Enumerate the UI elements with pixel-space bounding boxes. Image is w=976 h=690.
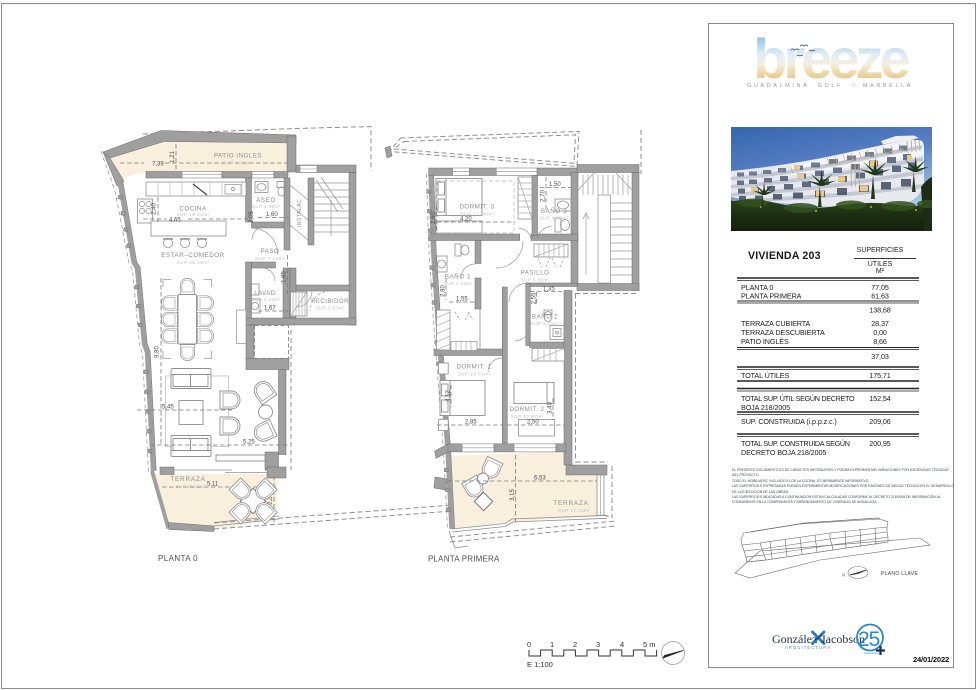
svg-text:25: 25 <box>858 628 880 651</box>
svg-text:TOTAL ÚTILES: TOTAL ÚTILES <box>741 371 789 380</box>
svg-text:SUP 45.16m²: SUP 45.16m² <box>176 260 209 266</box>
svg-text:TOTAL SUP. CONSTRUIDA SEGÚN: TOTAL SUP. CONSTRUIDA SEGÚN <box>741 439 850 448</box>
svg-text:209,06: 209,06 <box>869 417 890 426</box>
svg-text:2,85: 2,85 <box>465 420 477 426</box>
svg-text:6,53: 6,53 <box>534 476 546 482</box>
svg-text:PATIO INGLES: PATIO INGLES <box>214 153 262 160</box>
svg-text:0: 0 <box>527 640 531 649</box>
svg-text:PASO: PASO <box>261 248 280 255</box>
svg-text:RECIBIDOR: RECIBIDOR <box>311 299 349 305</box>
svg-text:7,39: 7,39 <box>152 162 164 168</box>
svg-text:138,68: 138,68 <box>869 306 890 315</box>
svg-text:1,67: 1,67 <box>264 306 276 312</box>
svg-text:SUP 3.44m²: SUP 3.44m² <box>530 321 559 327</box>
svg-text:COCINA: COCINA <box>179 206 206 213</box>
svg-text:SUP 12.56m²: SUP 12.56m² <box>460 212 493 218</box>
svg-text:TERRAZA DESCUBIERTA: TERRAZA DESCUBIERTA <box>741 328 825 337</box>
svg-text:INSTALAC.: INSTALAC. <box>297 197 303 227</box>
svg-text:TERRAZA CUBIERTA: TERRAZA CUBIERTA <box>741 319 811 328</box>
svg-text:ARQUITECTURA: ARQUITECTURA <box>785 645 831 650</box>
svg-text:SUP 7.12m²: SUP 7.12m² <box>255 256 285 262</box>
svg-text:5,25: 5,25 <box>243 440 255 446</box>
svg-text:BAÑO 3: BAÑO 3 <box>541 208 567 215</box>
svg-text:4: 4 <box>620 640 624 649</box>
svg-text:SUP 3.26m²: SUP 3.26m² <box>251 297 280 303</box>
svg-text:SUP. CONSTRUIDA (i.p.p.z.c.): SUP. CONSTRUIDA (i.p.p.z.c.) <box>741 417 837 426</box>
svg-text:1,55: 1,55 <box>456 297 468 303</box>
svg-text:5,11: 5,11 <box>207 482 219 488</box>
svg-text:LAVAD.: LAVAD. <box>254 291 277 297</box>
svg-text:TERRAZA: TERRAZA <box>553 500 588 507</box>
svg-text:1,21: 1,21 <box>170 151 176 163</box>
svg-text:8,66: 8,66 <box>873 337 887 346</box>
svg-text:PASILLO: PASILLO <box>521 270 550 277</box>
svg-text:E 1:100: E 1:100 <box>527 660 553 669</box>
svg-text:37,03: 37,03 <box>871 352 889 361</box>
svg-text:PLANO LLAVE: PLANO LLAVE <box>881 571 918 577</box>
svg-text:2,70: 2,70 <box>541 190 547 202</box>
svg-text:4,12: 4,12 <box>446 390 452 402</box>
svg-text:3: 3 <box>596 640 600 649</box>
svg-text:breeze: breeze <box>753 30 909 90</box>
svg-text:DORMIT. 1: DORMIT. 1 <box>456 364 491 371</box>
svg-text:1,95: 1,95 <box>282 271 288 283</box>
svg-text:SUP 12.87m²: SUP 12.87m² <box>510 414 543 420</box>
svg-text:PLANTA PRIMERA: PLANTA PRIMERA <box>741 292 802 301</box>
svg-text:DORMIT. 2: DORMIT. 2 <box>509 406 544 413</box>
svg-text:61,63: 61,63 <box>871 292 889 301</box>
svg-text:SUP 17.26m²: SUP 17.26m² <box>558 508 590 514</box>
svg-text:TOTAL SUP. ÚTIL SEGÚN DECRETO: TOTAL SUP. ÚTIL SEGÚN DECRETO <box>741 394 855 403</box>
svg-text:SUP 4.05m²: SUP 4.05m² <box>539 216 568 222</box>
svg-text:9,80: 9,80 <box>155 346 161 358</box>
svg-text:5,45: 5,45 <box>162 405 174 411</box>
svg-text:DORMIT. 3: DORMIT. 3 <box>459 204 494 211</box>
svg-text:SUP 10.44m²: SUP 10.44m² <box>176 212 209 218</box>
svg-text:1,60: 1,60 <box>266 212 278 218</box>
svg-text:TERRAZA: TERRAZA <box>170 476 205 483</box>
svg-text:1: 1 <box>550 640 554 649</box>
svg-text:0,00: 0,00 <box>873 328 887 337</box>
svg-text:SUP 19.01m²: SUP 19.01m² <box>457 372 490 378</box>
svg-text:ASEO: ASEO <box>256 198 276 204</box>
svg-text:1,50: 1,50 <box>549 182 561 188</box>
svg-text:3,40: 3,40 <box>548 402 554 414</box>
svg-text:5 m: 5 m <box>643 640 656 649</box>
svg-text:BAÑO 2: BAÑO 2 <box>532 314 558 321</box>
svg-text:N: N <box>842 573 845 578</box>
svg-text:2,50: 2,50 <box>527 420 539 426</box>
svg-text:4,65: 4,65 <box>169 218 181 224</box>
svg-text:1,35: 1,35 <box>543 287 555 293</box>
svg-text:200,95: 200,95 <box>869 439 890 448</box>
svg-text:SUP 4.34m²: SUP 4.34m² <box>443 281 472 287</box>
svg-text:SUP 8.66m²: SUP 8.66m² <box>223 161 253 167</box>
svg-text:SUP 11.11m²: SUP 11.11m² <box>175 484 206 490</box>
svg-text:DECRETO BOJA 218/2005: DECRETO BOJA 218/2005 <box>741 448 826 457</box>
svg-text:2: 2 <box>573 640 577 649</box>
svg-text:28,37: 28,37 <box>871 319 889 328</box>
svg-text:2,05: 2,05 <box>249 211 255 223</box>
svg-text:PLANTA PRIMERA: PLANTA PRIMERA <box>428 555 500 564</box>
svg-text:2,55: 2,55 <box>532 292 538 304</box>
svg-text:González: González <box>772 632 817 646</box>
svg-text:PATIO INGLÉS: PATIO INGLÉS <box>741 337 789 346</box>
svg-text:ESTAR–COMEDOR: ESTAR–COMEDOR <box>161 252 224 259</box>
svg-text:SUP 3.83m²: SUP 3.83m² <box>315 306 344 312</box>
svg-text:BAÑO 1: BAÑO 1 <box>445 274 471 281</box>
svg-text:3,15: 3,15 <box>510 489 516 501</box>
svg-text:SUP 5.36m²: SUP 5.36m² <box>520 278 549 284</box>
svg-text:SUP 3.46m²: SUP 3.46m² <box>251 204 280 210</box>
svg-text:BOJA 218/2005: BOJA 218/2005 <box>741 403 790 412</box>
svg-text:2,40: 2,40 <box>152 203 158 215</box>
svg-text:152,54: 152,54 <box>869 394 890 403</box>
svg-text:PLANTA 0: PLANTA 0 <box>158 554 198 563</box>
svg-text:2,60: 2,60 <box>431 212 437 224</box>
svg-text:175,71: 175,71 <box>869 371 890 380</box>
